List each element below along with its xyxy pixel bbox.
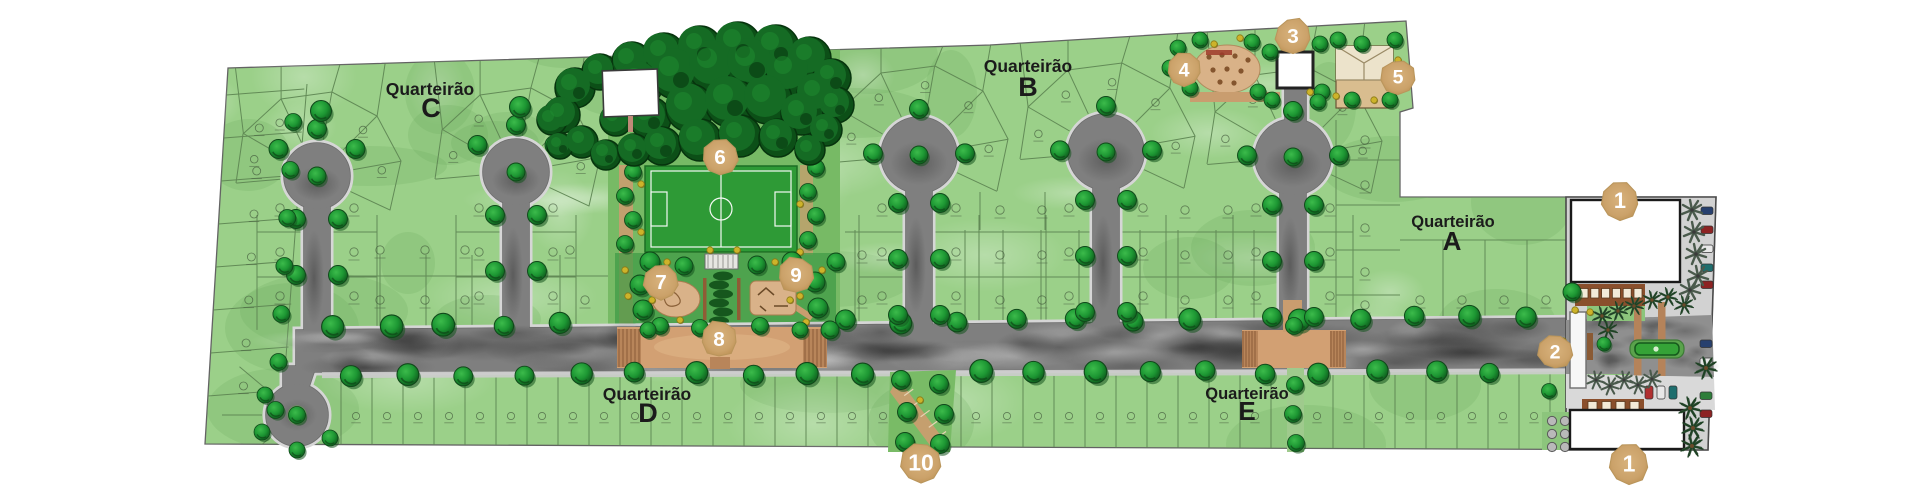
svg-text:3: 3 xyxy=(1287,25,1299,48)
svg-text:1: 1 xyxy=(1614,188,1626,213)
svg-text:1: 1 xyxy=(1623,451,1636,477)
svg-text:D: D xyxy=(638,398,658,428)
svg-text:6: 6 xyxy=(714,146,726,169)
svg-text:2: 2 xyxy=(1550,342,1561,364)
svg-text:C: C xyxy=(421,93,441,123)
svg-text:A: A xyxy=(1443,226,1462,256)
svg-text:5: 5 xyxy=(1393,67,1404,89)
svg-text:10: 10 xyxy=(908,450,934,476)
svg-text:8: 8 xyxy=(713,328,725,351)
svg-text:B: B xyxy=(1018,72,1038,102)
svg-text:E: E xyxy=(1238,396,1255,426)
svg-text:9: 9 xyxy=(790,264,802,287)
svg-text:4: 4 xyxy=(1179,60,1190,82)
svg-text:7: 7 xyxy=(655,271,667,294)
